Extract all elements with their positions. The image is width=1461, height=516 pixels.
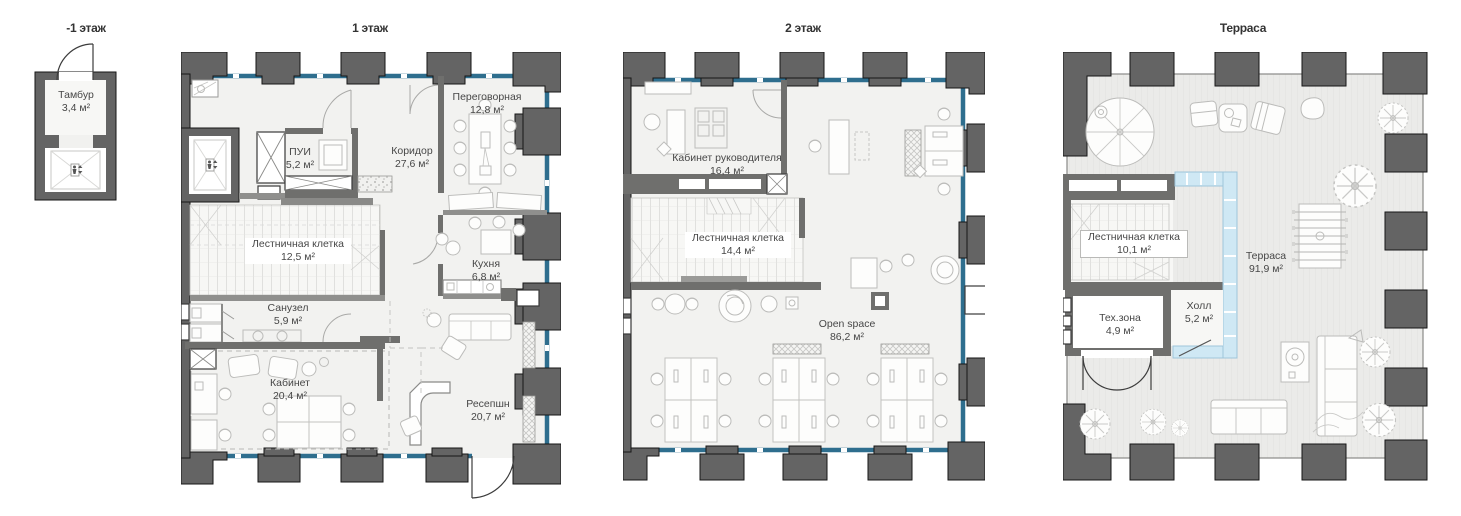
room-label-kabinet-rukovoditelya: Кабинет руководителя16,4 м²: [672, 152, 781, 178]
room-label-stairs-terrace: Лестничная клетка10,1 м²: [1080, 230, 1188, 258]
plan-title-terrace: Терраса: [1220, 21, 1266, 35]
floor-plan-minus1: [33, 38, 123, 206]
foosball-table: [1292, 204, 1348, 268]
floor-plan-1: [181, 52, 561, 504]
ball-chair: [1301, 98, 1324, 119]
floorplans-canvas: -1 этаж 1 этаж: [0, 0, 1461, 516]
umbrella: [1086, 98, 1154, 166]
elevator-block: [181, 128, 239, 202]
room-label-tambur: Тамбур3,4 м²: [58, 89, 94, 115]
room-label-kuhnya: Кухня6,8 м²: [472, 258, 500, 284]
plan-title-floor1: 1 этаж: [352, 21, 388, 35]
room-label-stairs-2: Лестничная клетка14,4 м²: [685, 232, 791, 258]
room-label-stairs-1: Лестничная клетка12,5 м²: [245, 238, 351, 264]
floor-plan-2: [623, 52, 985, 484]
room-label-holl: Холл5,2 м²: [1185, 300, 1213, 326]
entrance-door: [472, 456, 514, 498]
room-label-terrasa: Терраса91,9 м²: [1246, 250, 1286, 276]
room-label-kabinet: Кабинет20,4 м²: [270, 377, 310, 403]
room-label-pui: ПУИ5,2 м²: [286, 146, 314, 172]
room-label-tehzona: Тех.зона4,9 м²: [1099, 312, 1141, 338]
plan-title-floor2: 2 этаж: [785, 21, 821, 35]
open-space-clusters: [651, 344, 947, 442]
room-label-sanuzel: Санузел5,9 м²: [268, 302, 309, 328]
room-label-koridor: Коридор27,6 м²: [391, 145, 432, 171]
room-label-peregovornaya: Переговорная12,8 м²: [453, 91, 522, 117]
plan-title-minus1: -1 этаж: [66, 21, 105, 35]
room-label-resepshn: Ресепшн20,7 м²: [466, 398, 509, 424]
fan-coil-box: [192, 80, 218, 97]
room-label-open-space: Open space86,2 м²: [819, 318, 876, 344]
